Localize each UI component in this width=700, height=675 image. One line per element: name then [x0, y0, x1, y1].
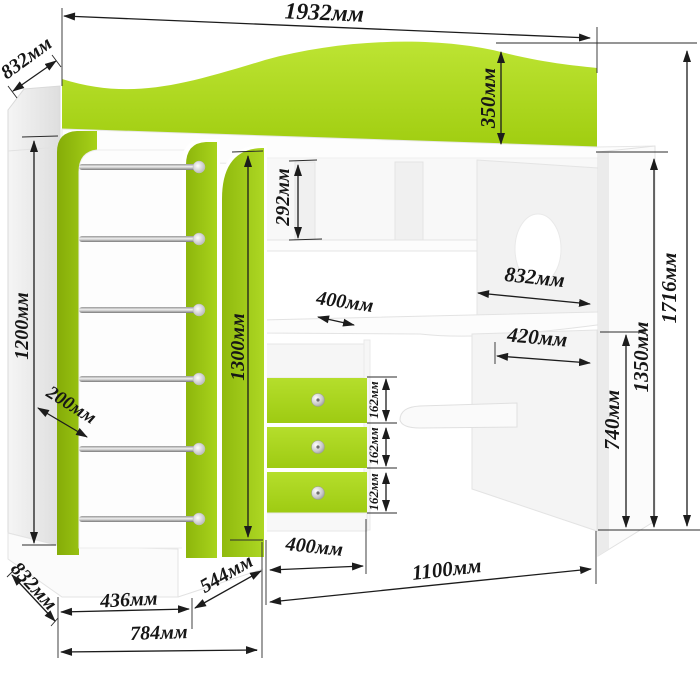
dim-left-section-width: 784мм — [61, 621, 257, 652]
dim-label-headboard-height: 350мм — [476, 68, 500, 129]
dim-label-wardrobe-width: 436мм — [99, 588, 159, 613]
ladder-rung — [79, 164, 197, 170]
dim-drawer-3: 162мм — [366, 473, 386, 511]
dim-label-niche-height: 292мм — [272, 168, 294, 227]
ladder-rung — [79, 236, 197, 242]
ladder-side-panel — [186, 142, 217, 558]
dim-label-wardrobe-height: 1200мм — [11, 292, 33, 360]
rung-cap — [193, 513, 205, 525]
rung-cap — [193, 443, 205, 455]
ladder-rung — [79, 307, 197, 313]
ladder-rung — [79, 376, 197, 382]
furniture-dimension-diagram: 1932мм 832мм 350мм 292мм 1200мм 200мм 13… — [0, 0, 700, 675]
dim-drawer-1: 162мм — [366, 379, 386, 421]
dim-desk-section-width: 1100мм — [270, 553, 591, 602]
ladder-rung — [79, 446, 197, 452]
dim-label-desk-height: 740мм — [600, 390, 624, 450]
rung-cap — [193, 304, 205, 316]
dim-label-total-height: 1716мм — [657, 253, 681, 324]
rung-cap — [193, 161, 205, 173]
rung-cap — [193, 233, 205, 245]
dim-top-depth: 832мм — [0, 32, 56, 91]
dim-label-desk-section-width: 1100мм — [411, 553, 483, 585]
dim-label-shelf-depth: 400мм — [314, 287, 375, 317]
under-desk-panel — [472, 330, 597, 531]
dim-label-top-depth: 832мм — [0, 32, 56, 84]
dim-label-drawer-2: 162мм — [366, 427, 381, 464]
dim-label-drawer-unit-width: 400мм — [284, 533, 345, 561]
rung-cap — [193, 373, 205, 385]
dim-total-width: 1932мм — [64, 0, 590, 38]
dim-label-drawer-1: 162мм — [366, 381, 381, 418]
corner-shelf — [400, 403, 517, 428]
dim-label-mid-panel-height: 1300мм — [227, 313, 249, 381]
shelf-divider — [395, 162, 423, 242]
dim-label-bed-height: 1350мм — [629, 322, 653, 393]
dim-drawer-2: 162мм — [366, 427, 386, 466]
wardrobe-door — [79, 150, 190, 548]
dim-label-drawer-3: 162мм — [366, 473, 381, 510]
dim-label-total-width: 1932мм — [284, 0, 364, 28]
ladder-rung — [79, 516, 197, 522]
dim-total-height: 1716мм — [657, 51, 687, 526]
right-side-panel-edge — [598, 151, 609, 556]
dim-label-left-section-width: 784мм — [130, 621, 188, 645]
dim-drawer-unit-width: 400мм — [270, 533, 363, 570]
